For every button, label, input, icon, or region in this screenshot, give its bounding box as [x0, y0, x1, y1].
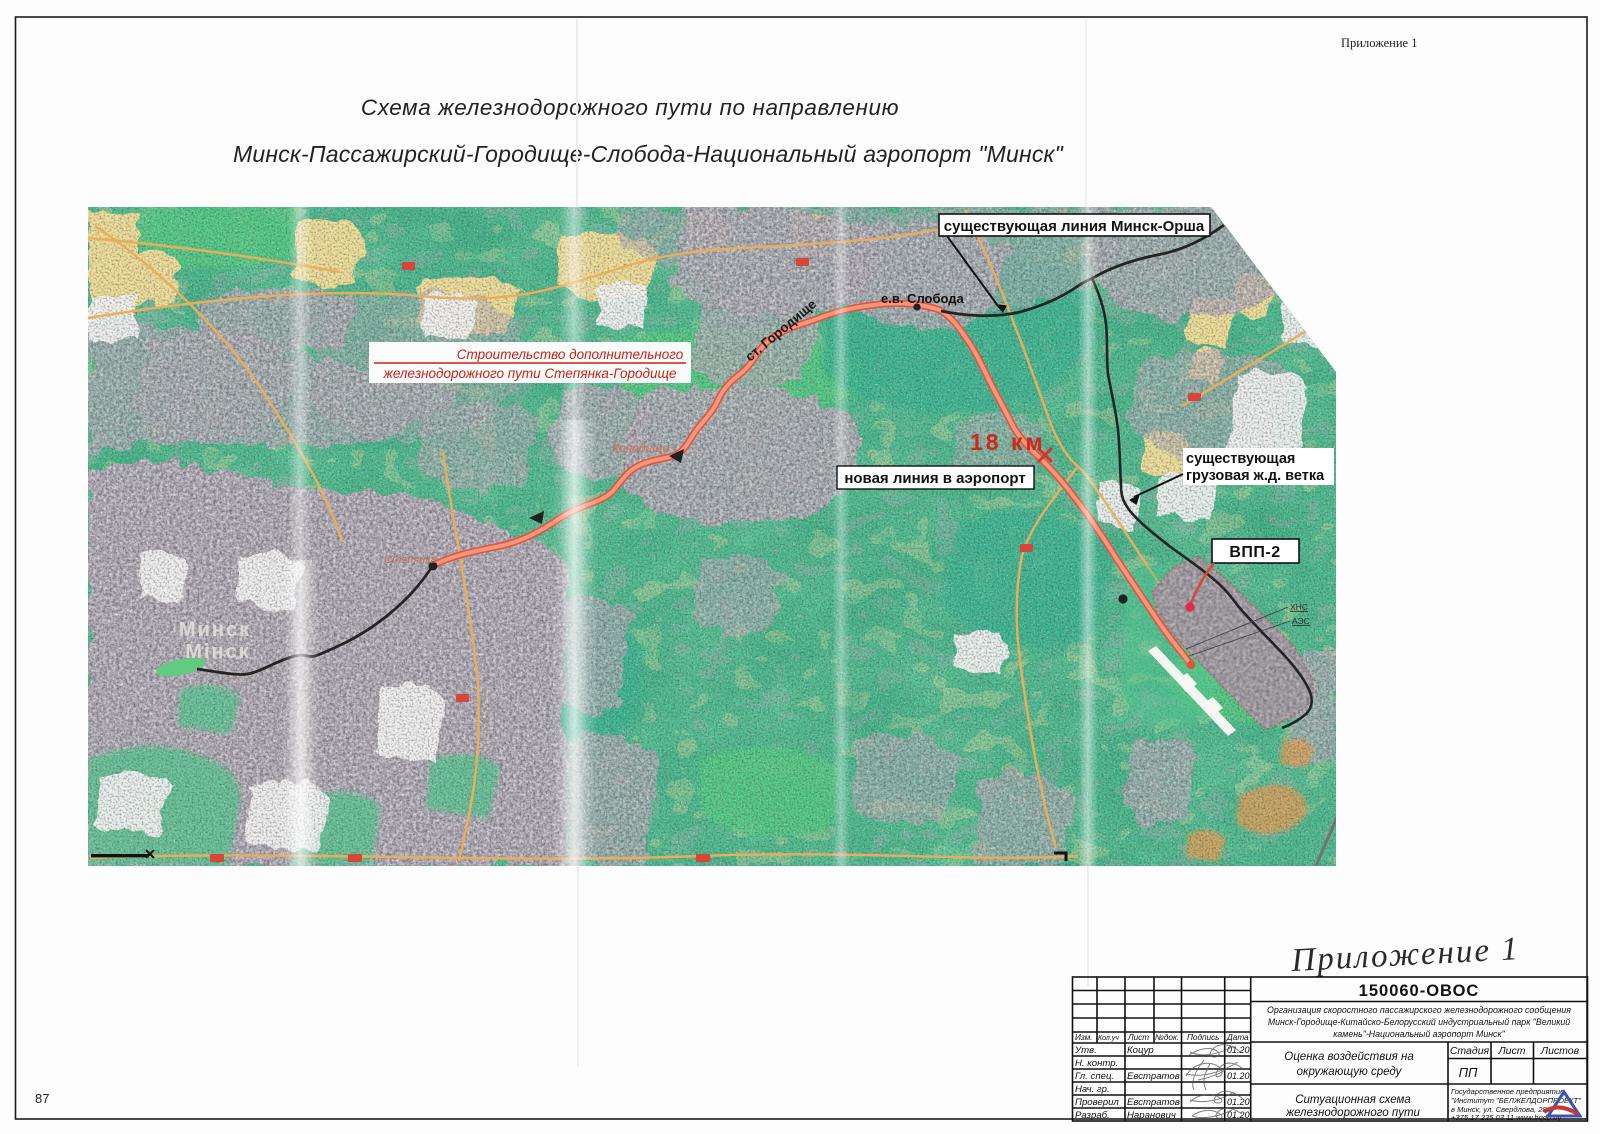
svg-text:Минск-Городище-Китайско-Белору: Минск-Городище-Китайско-Белорусский инду… — [1268, 1017, 1570, 1027]
svg-text:е.в. Слобода: е.в. Слобода — [881, 291, 965, 306]
svg-text:Кол.уч: Кол.уч — [1098, 1035, 1119, 1042]
svg-text:01.20: 01.20 — [1227, 1071, 1250, 1081]
svg-text:Подпись: Подпись — [1187, 1033, 1219, 1042]
svg-text:Организация скоростного пассаж: Организация скоростного пассажирского же… — [1267, 1005, 1571, 1015]
svg-text:Минск: Минск — [179, 619, 251, 641]
svg-text:Колодищи: Колодищи — [612, 441, 669, 455]
svg-text:Дата: Дата — [1226, 1033, 1249, 1042]
svg-text:Утв.: Утв. — [1074, 1045, 1097, 1056]
svg-text:Схема железнодорожного пути по: Схема железнодорожного пути по направлен… — [361, 95, 899, 120]
svg-text:Листов: Листов — [1540, 1045, 1580, 1057]
svg-text:Разраб.: Разраб. — [1075, 1110, 1110, 1121]
svg-text:ВПП-2: ВПП-2 — [1229, 544, 1280, 561]
svg-text:Коцур: Коцур — [1127, 1045, 1154, 1056]
svg-text:Лист: Лист — [1127, 1033, 1149, 1042]
svg-text:Лист: Лист — [1497, 1045, 1525, 1057]
svg-text:грузовая ж.д. ветка: грузовая ж.д. ветка — [1186, 468, 1325, 484]
svg-text:существующая линия Минск-Орша: существующая линия Минск-Орша — [944, 218, 1205, 235]
svg-text:ПП: ПП — [1459, 1065, 1478, 1080]
svg-text:01.20: 01.20 — [1227, 1097, 1250, 1107]
svg-text:Наранович: Наранович — [1127, 1110, 1176, 1121]
svg-text:Степянка: Степянка — [384, 554, 437, 566]
svg-text:Оценка воздействия на: Оценка воздействия на — [1284, 1051, 1413, 1063]
svg-text:Стадия: Стадия — [1450, 1045, 1490, 1057]
svg-text:Нач. гр.: Нач. гр. — [1075, 1084, 1110, 1095]
svg-text:железнодорожного пути: железнодорожного пути — [1285, 1107, 1420, 1119]
svg-text:18 км: 18 км — [970, 429, 1046, 455]
svg-text:Изм.: Изм. — [1075, 1033, 1092, 1042]
svg-text:150060-ОВОС: 150060-ОВОС — [1359, 982, 1480, 1000]
svg-text:№док.: №док. — [1155, 1033, 1179, 1042]
svg-text:Мінск: Мінск — [185, 641, 250, 663]
svg-text:Минск-Пассажирский-Городище-Сл: Минск-Пассажирский-Городище-Слобода-Наци… — [233, 141, 1065, 167]
svg-text:Евстратов: Евстратов — [1127, 1071, 1180, 1082]
svg-text:Ситуационная схема: Ситуационная схема — [1295, 1094, 1411, 1106]
svg-text:существующая: существующая — [1186, 451, 1295, 467]
svg-text:87: 87 — [35, 1091, 49, 1106]
svg-text:окружающую среду: окружающую среду — [1297, 1066, 1403, 1078]
svg-text:Приложение 1: Приложение 1 — [1341, 36, 1417, 50]
svg-text:камень"-Национальный аэропорт: камень"-Национальный аэропорт Минск" — [1333, 1029, 1505, 1039]
svg-text:Н. контр.: Н. контр. — [1075, 1058, 1118, 1069]
svg-text:новая линия в аэропорт: новая линия в аэропорт — [844, 470, 1025, 487]
svg-text:Государственное предприятие: Государственное предприятие — [1451, 1087, 1564, 1096]
svg-text:Евстратов: Евстратов — [1127, 1097, 1180, 1108]
svg-text:Проверил: Проверил — [1075, 1097, 1119, 1108]
svg-text:Гл. спец.: Гл. спец. — [1075, 1071, 1114, 1082]
svg-text:железнодорожного пути Степянка: железнодорожного пути Степянка-Городище — [383, 366, 677, 381]
svg-text:Строительство дополнительного: Строительство дополнительного — [457, 347, 684, 362]
